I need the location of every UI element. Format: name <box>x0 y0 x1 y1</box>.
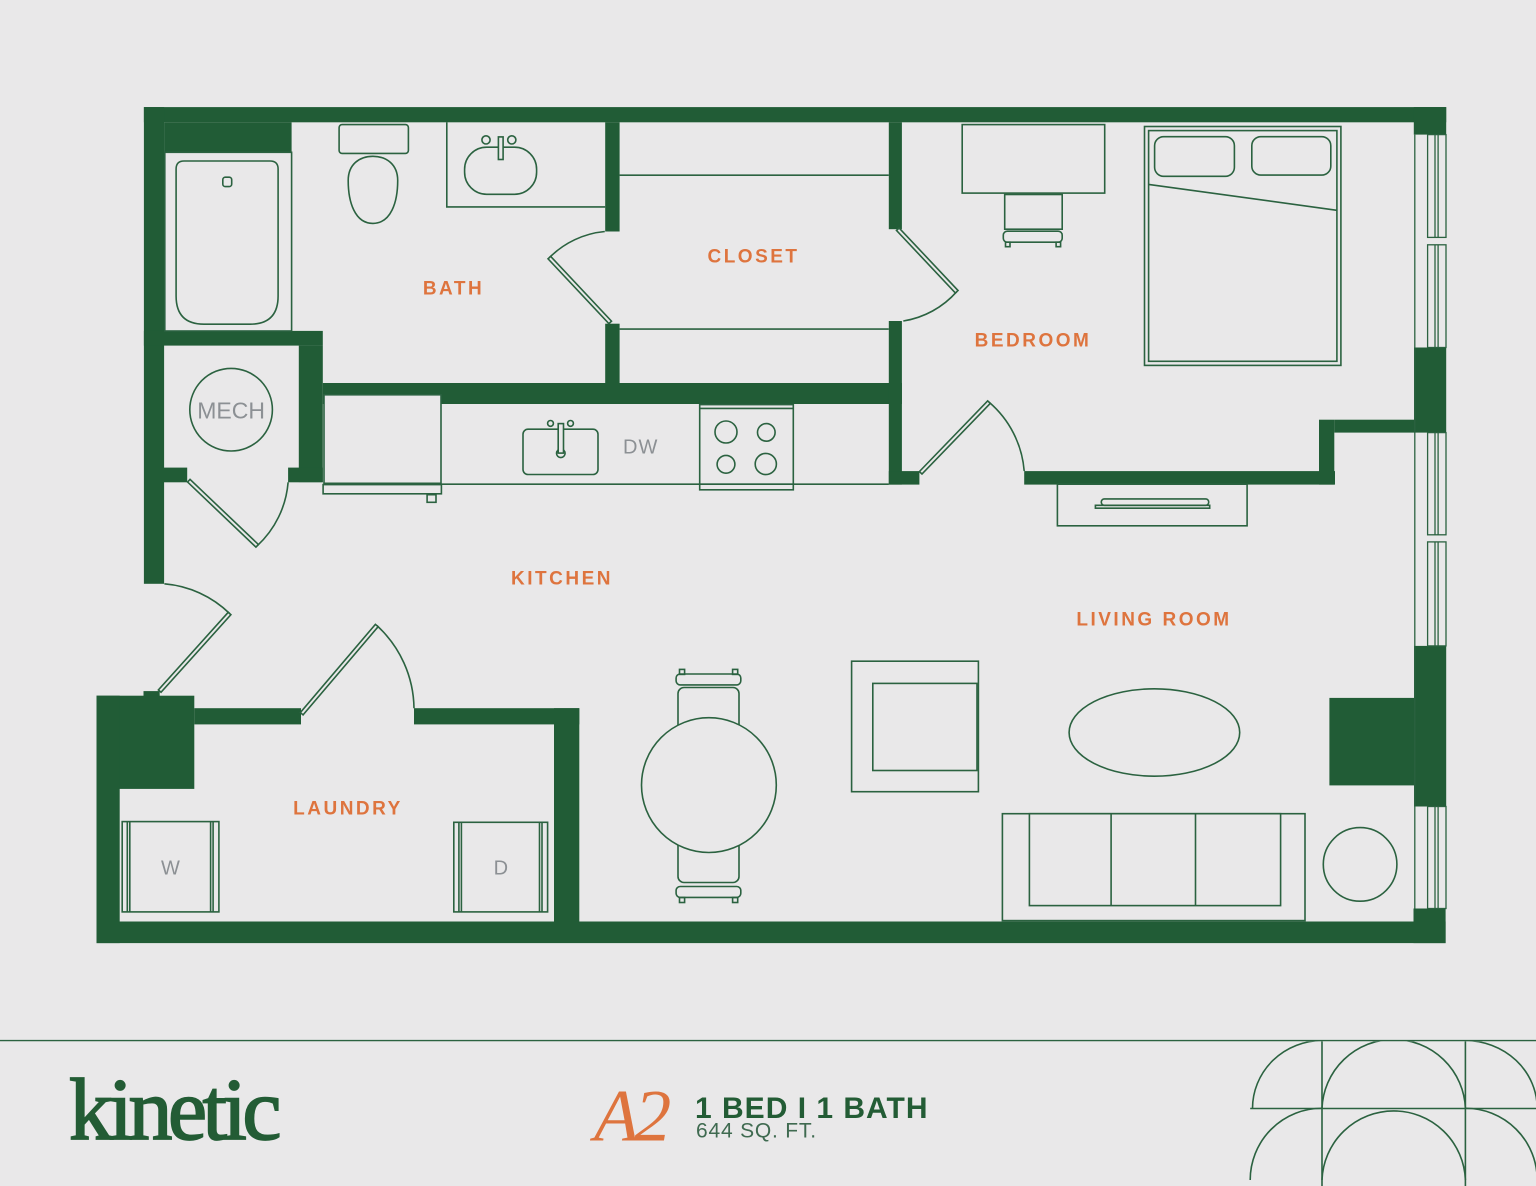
svg-text:MECH: MECH <box>197 397 265 423</box>
svg-text:644 SQ. FT.: 644 SQ. FT. <box>696 1120 817 1143</box>
svg-text:BATH: BATH <box>423 279 484 300</box>
svg-text:D: D <box>494 858 509 880</box>
svg-text:DW: DW <box>623 437 658 459</box>
svg-text:A2: A2 <box>589 1076 670 1158</box>
svg-text:LIVING ROOM: LIVING ROOM <box>1076 610 1231 631</box>
svg-text:kinetic: kinetic <box>69 1062 279 1159</box>
svg-text:KITCHEN: KITCHEN <box>511 569 613 590</box>
svg-text:BEDROOM: BEDROOM <box>975 331 1092 352</box>
svg-text:W: W <box>161 858 181 880</box>
svg-text:LAUNDRY: LAUNDRY <box>293 799 403 820</box>
svg-text:CLOSET: CLOSET <box>707 247 799 268</box>
